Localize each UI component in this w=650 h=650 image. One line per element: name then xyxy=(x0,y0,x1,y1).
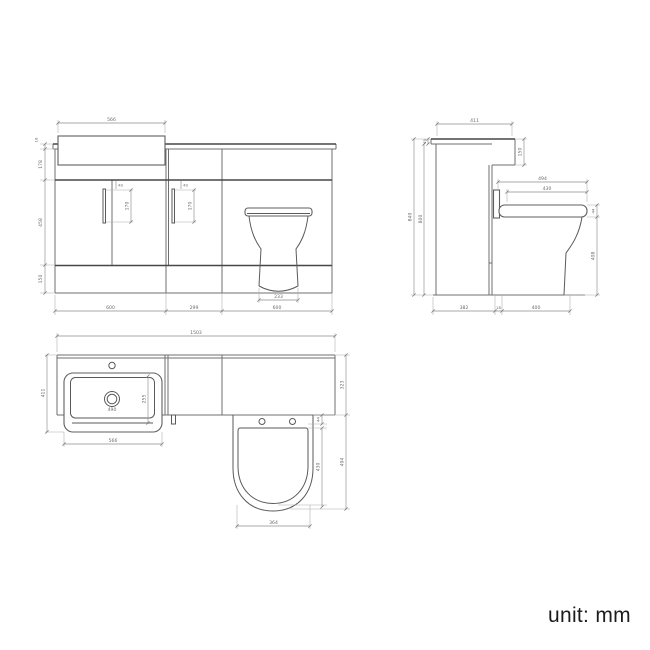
plan-dim-seat-setback: 44 xyxy=(316,417,321,422)
side-ext-lines xyxy=(411,121,600,315)
front-dim-worktop-thickness: 18 xyxy=(34,137,39,142)
side-dim-pan-height: 408 xyxy=(591,252,597,261)
side-dim-worktop-depth: 411 xyxy=(470,118,479,124)
front-dim-mid-width: 299 xyxy=(190,305,199,311)
front-dim-basin-width: 566 xyxy=(107,117,116,123)
toilet-front-body xyxy=(249,216,308,291)
door-handle-left xyxy=(103,189,106,223)
plan-dim-bowl-depth: 255 xyxy=(142,395,148,404)
side-dim-seat-thickness: 44 xyxy=(591,208,596,213)
side-dim-upstand-height: 150 xyxy=(518,148,524,157)
plan-dim-run-depth: 323 xyxy=(340,381,346,390)
side-dim-carcass-height: 800 xyxy=(418,215,424,224)
technical-drawing: 566 18 178 458 150 40 40 170 170 600 299… xyxy=(0,0,650,650)
plan-dim-basin-width: 566 xyxy=(109,438,118,444)
side-dim-overall-height: 840 xyxy=(408,213,414,222)
front-dim-top-section: 178 xyxy=(38,160,44,169)
plan-handle xyxy=(172,415,176,424)
side-dim-pan-projection: 494 xyxy=(538,176,547,182)
front-dim-door-height: 458 xyxy=(38,218,44,227)
plan-dim-seat-length: 430 xyxy=(316,463,322,472)
front-dim-pan-base: 233 xyxy=(274,294,283,300)
plan-dim-bowl-width: 490 xyxy=(108,407,117,413)
front-dim-plinth-height: 150 xyxy=(38,275,44,284)
tap-hole xyxy=(109,362,115,368)
front-dim-handle-length-right: 170 xyxy=(188,202,194,211)
front-dim-handle-offset-left: 40 xyxy=(118,183,123,188)
plan-view: 1503 411 255 490 566 323 44 430 494 364 xyxy=(41,330,351,529)
basin-front-outline xyxy=(58,136,165,165)
plan-dim-overall-width: 1503 xyxy=(190,330,202,336)
toilet-plan-pan xyxy=(233,415,313,511)
seat-hinge-left xyxy=(259,419,265,425)
unit-label: unit: mm xyxy=(548,604,648,628)
toilet-side-hinge xyxy=(494,190,500,218)
front-dim-handle-offset-right: 40 xyxy=(183,183,188,188)
plan-dim-pan-width: 364 xyxy=(269,520,278,526)
front-dim-wc-width: 600 xyxy=(273,305,282,311)
front-outline xyxy=(53,144,336,293)
plan-dim-pan-projection: 494 xyxy=(340,458,346,467)
toilet-front-seat xyxy=(245,208,312,216)
side-view: 411 45 840 800 150 494 430 44 408 382 18… xyxy=(408,118,601,315)
front-dim-vanity-width: 600 xyxy=(106,305,115,311)
side-dim-gap: 18 xyxy=(496,305,501,310)
plan-dim-basin-depth: 411 xyxy=(41,389,47,398)
toilet-side-body xyxy=(564,217,582,295)
side-dim-base-depth: 382 xyxy=(460,305,469,311)
side-dim-worktop-edge: 45 xyxy=(422,139,427,144)
door-handle-right xyxy=(172,189,175,223)
toilet-plan-seat xyxy=(238,428,308,504)
screenshot-canvas: 566 18 178 458 150 40 40 170 170 600 299… xyxy=(0,0,650,650)
side-dim-pan-depth: 400 xyxy=(532,305,541,311)
front-dim-handle-length-left: 170 xyxy=(125,202,131,211)
front-view: 566 18 178 458 150 40 40 170 170 600 299… xyxy=(34,117,337,315)
toilet-side-seat xyxy=(499,205,587,217)
side-dim-seat-length: 430 xyxy=(543,186,552,192)
seat-hinge-right xyxy=(290,419,296,425)
